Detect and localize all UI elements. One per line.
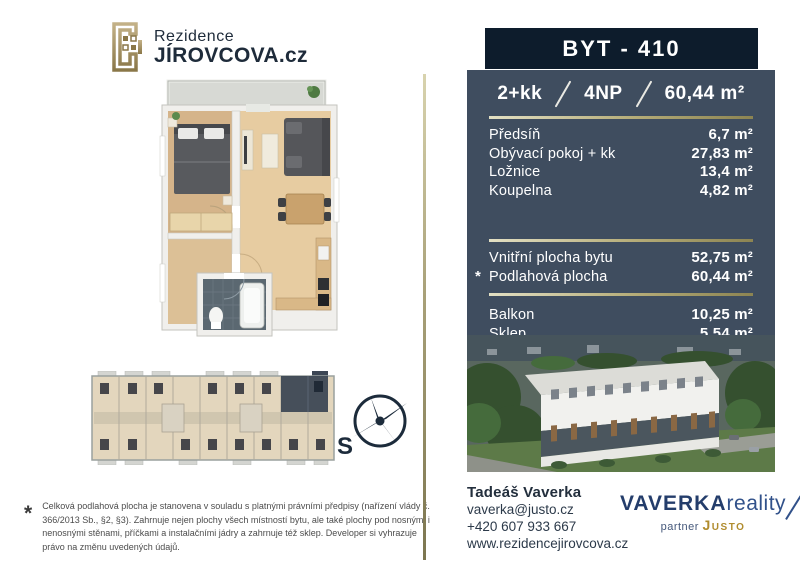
- unit-details-panel: 2+kk 4NP 60,44 m² Předsíň 6,7 m² Obývací…: [467, 70, 775, 472]
- brand-name-line2: JÍROVCOVA.cz: [154, 45, 308, 67]
- room-list: Předsíň 6,7 m² Obývací pokoj + kk 27,83 …: [489, 126, 753, 200]
- extra-label: Balkon: [489, 307, 535, 325]
- total-label: Vnitřní plocha bytu: [489, 250, 613, 268]
- extra-row: Balkon 10,25 m²: [489, 306, 753, 325]
- gold-separator: [489, 116, 753, 119]
- unit-title: BYT - 410: [562, 36, 680, 62]
- room-row: Koupelna 4,82 m²: [489, 182, 753, 201]
- room-value: 13,4 m²: [700, 163, 753, 181]
- extra-value: 10,25 m²: [691, 306, 753, 324]
- gold-separator: [489, 239, 753, 242]
- agency-partner-name: Justo: [703, 517, 746, 533]
- room-label: Obývací pokoj + kk: [489, 146, 616, 164]
- apartment-flyer: Rezidence JÍROVCOVA.cz: [0, 0, 800, 566]
- compass-icon: S: [333, 388, 411, 462]
- room-row: Obývací pokoj + kk 27,83 m²: [489, 145, 753, 164]
- building-logo-icon: [108, 22, 148, 72]
- agency-name-bold: VAVERKA: [620, 492, 727, 515]
- total-row: Vnitřní plocha bytu 52,75 m²: [489, 249, 753, 268]
- footnote-asterisk: *: [24, 502, 32, 554]
- unit-area: 60,44 m²: [665, 83, 745, 105]
- floor-overview-plan: [90, 371, 336, 465]
- brand-name-line1: Rezidence: [154, 28, 308, 45]
- total-label: Podlahová plocha: [489, 269, 608, 287]
- building-aerial-photo: [467, 335, 775, 472]
- room-label: Předsíň: [489, 127, 540, 145]
- agency-name-light: reality: [727, 492, 787, 515]
- gold-separator: [489, 293, 753, 296]
- agency-partner-label: partner: [661, 521, 699, 533]
- contact-website: www.rezidencejirovcova.cz: [467, 535, 628, 552]
- unit-summary-row: 2+kk 4NP 60,44 m²: [489, 70, 753, 116]
- contact-phone: +420 607 933 667: [467, 518, 628, 535]
- room-label: Ložnice: [489, 164, 540, 182]
- unit-disposition: 2+kk: [497, 83, 542, 105]
- room-row: Ložnice 13,4 m²: [489, 163, 753, 182]
- compass-north-label: S: [337, 433, 353, 460]
- vertical-divider: [423, 74, 426, 560]
- room-row: Předsíň 6,7 m²: [489, 126, 753, 145]
- footnote: * Celková podlahová plocha je stanovena …: [20, 500, 436, 554]
- total-row: * Podlahová plocha 60,44 m²: [489, 268, 753, 287]
- total-marker: *: [475, 268, 481, 286]
- slash-divider-icon: [635, 81, 652, 108]
- room-label: Koupelna: [489, 183, 552, 201]
- logo-flourish-icon: [785, 490, 800, 520]
- contact-name: Tadeáš Vaverka: [467, 484, 628, 501]
- total-value: 52,75 m²: [691, 249, 753, 267]
- agency-logo: VAVERKAreality partner Justo: [618, 492, 788, 533]
- room-value: 27,83 m²: [691, 145, 753, 163]
- unit-floor: 4NP: [584, 83, 622, 105]
- contact-block: Tadeáš Vaverka vaverka@justo.cz +420 607…: [467, 484, 628, 552]
- room-value: 6,7 m²: [708, 126, 753, 144]
- footnote-text: Celková podlahová plocha je stanovena v …: [42, 500, 436, 554]
- contact-email: vaverka@justo.cz: [467, 501, 628, 518]
- unit-title-banner: BYT - 410: [485, 28, 758, 69]
- total-value: 60,44 m²: [691, 268, 753, 286]
- slash-divider-icon: [555, 81, 572, 108]
- floorplan-3d: [128, 78, 352, 346]
- brand-logo: Rezidence JÍROVCOVA.cz: [108, 22, 308, 72]
- room-value: 4,82 m²: [700, 182, 753, 200]
- totals-list: Vnitřní plocha bytu 52,75 m² * Podlahová…: [489, 249, 753, 286]
